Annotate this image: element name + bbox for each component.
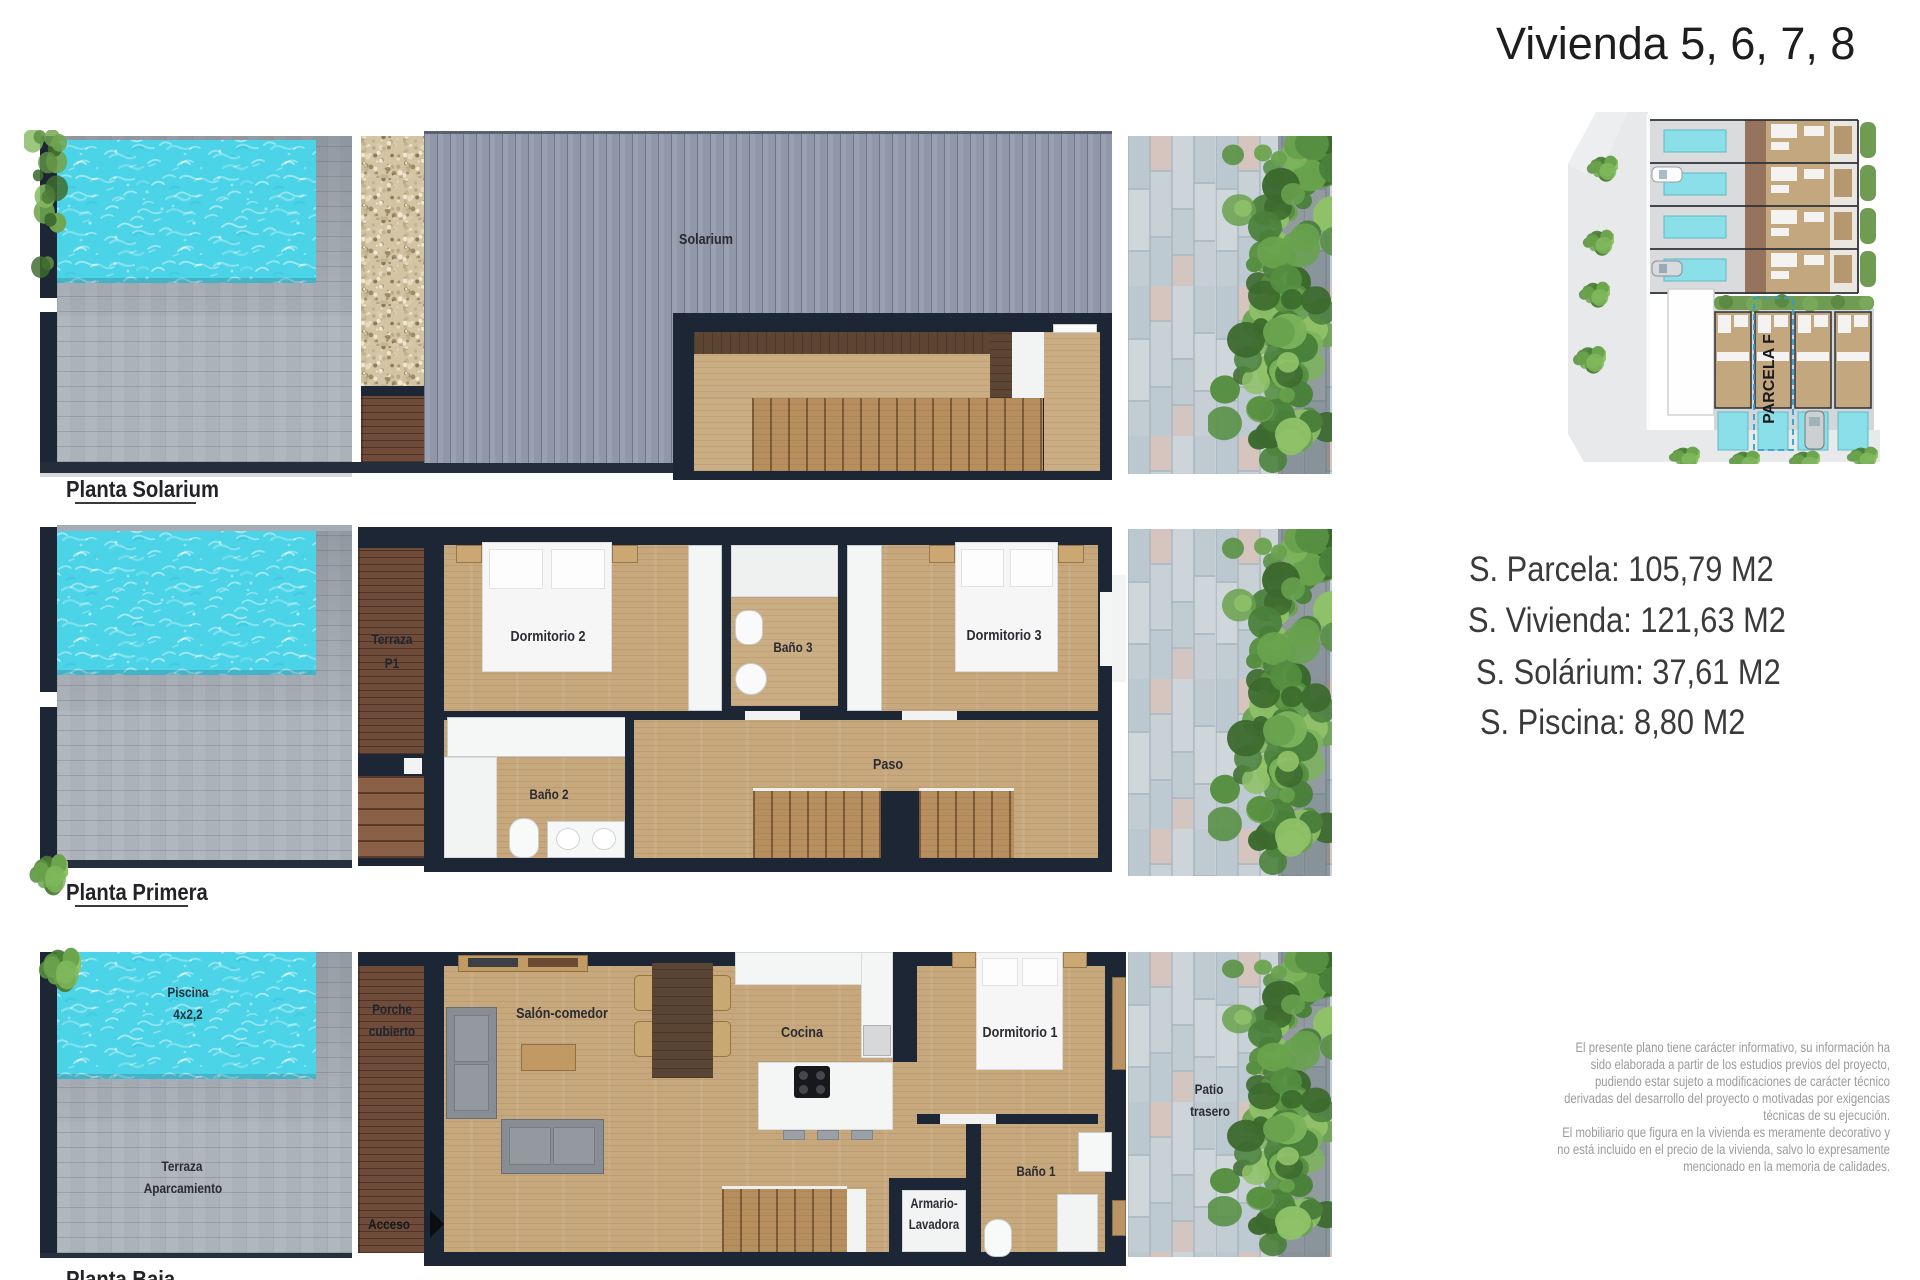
svg-text:PARCELA F: PARCELA F <box>1761 334 1778 424</box>
